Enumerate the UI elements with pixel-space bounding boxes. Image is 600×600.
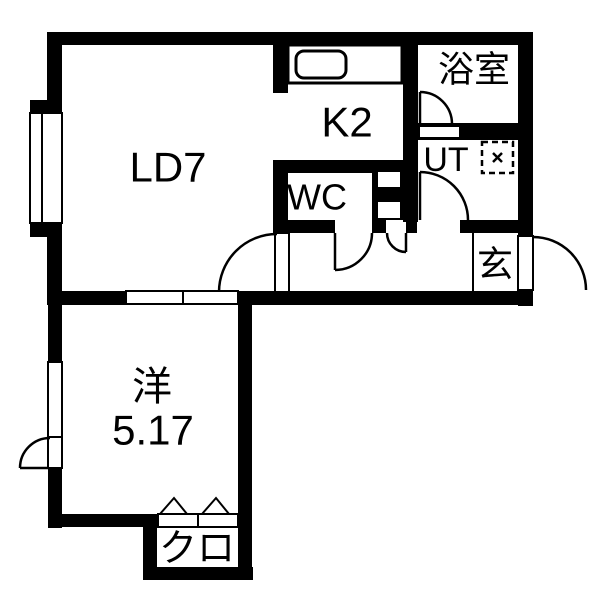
duct-niche-lower: [378, 202, 400, 218]
wall-segment-left-mid: [47, 236, 62, 291]
wall-segment-bottom-band-left: [47, 291, 126, 305]
wall-segment-ut-bottom: [460, 220, 518, 233]
wall-segment-western-left-upper: [48, 304, 62, 362]
closet-door-panel-right: [198, 514, 238, 527]
window-western-left: [48, 362, 62, 468]
wall-segment-kitchen-bath: [403, 45, 418, 222]
room-label-toilet: WC: [287, 177, 347, 218]
door-leaf-front: [518, 236, 533, 290]
wall-stub-ld-kitchen: [273, 45, 288, 93]
room-label-kitchen: K2: [321, 99, 372, 146]
floorplan-canvas: LD7 K2 浴室 UT WC 玄 洋 5.17 クロ: [0, 0, 600, 600]
wall-segment-hall-top-left: [288, 220, 335, 233]
wall-segment-right-upper: [518, 32, 533, 237]
door-leaf-ld: [275, 233, 289, 292]
window-ld-left: [30, 113, 62, 223]
wall-segment-western-closet-right: [238, 304, 252, 580]
sliding-door-panel-right: [183, 291, 238, 304]
room-label-utility: UT: [423, 141, 468, 179]
kitchen-sink-icon: [296, 51, 346, 78]
wall-segment-left-top: [47, 32, 62, 100]
floorplan-page: LD7 K2 浴室 UT WC 玄 洋 5.17 クロ: [0, 0, 600, 600]
wall-segment-top: [47, 32, 533, 45]
wall-segment-western-bottom: [48, 514, 160, 527]
wall-notch-ld-window-bottom: [30, 223, 62, 237]
room-label-living-dining: LD7: [129, 144, 206, 191]
sliding-door-panel-left: [126, 291, 183, 304]
duct-niche-upper: [378, 172, 400, 187]
closet-door-panel-left: [158, 514, 198, 527]
wall-notch-ld-window-top: [30, 100, 62, 113]
room-label-bathroom: 浴室: [438, 49, 510, 90]
wall-segment-bottom-band-right: [238, 291, 533, 305]
door-threshold-bath: [419, 126, 460, 138]
room-label-western-name: 洋: [132, 365, 172, 409]
room-label-entrance: 玄: [477, 244, 513, 285]
room-label-closet: クロ: [159, 528, 235, 570]
entrance-step-line: [472, 233, 474, 291]
wall-segment-wc-top: [273, 160, 417, 173]
wall-segment-hall-top-mid: [372, 220, 386, 233]
room-label-western-size: 5.17: [112, 407, 194, 454]
